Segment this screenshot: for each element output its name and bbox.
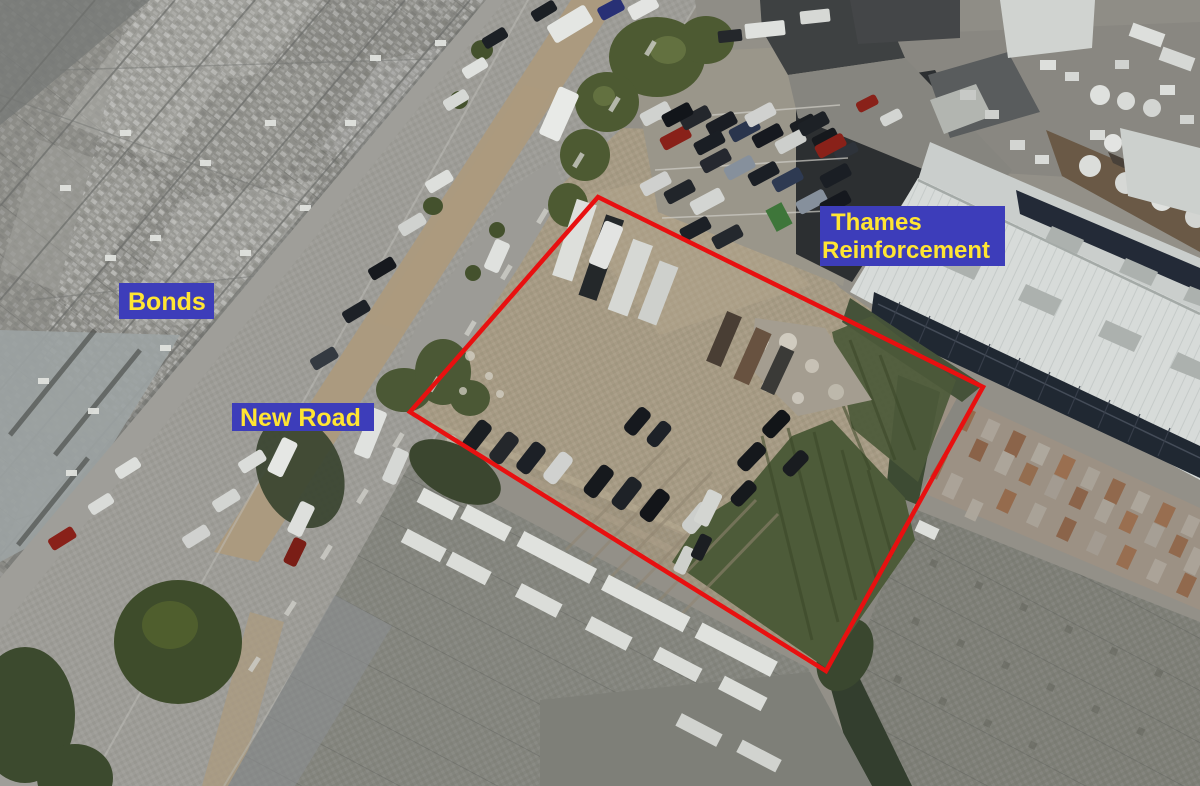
svg-text:Bonds: Bonds: [128, 288, 206, 316]
svg-text:New Road: New Road: [240, 404, 361, 432]
svg-text:Thames: Thames: [831, 209, 922, 236]
svg-text:Reinforcement: Reinforcement: [822, 237, 990, 264]
